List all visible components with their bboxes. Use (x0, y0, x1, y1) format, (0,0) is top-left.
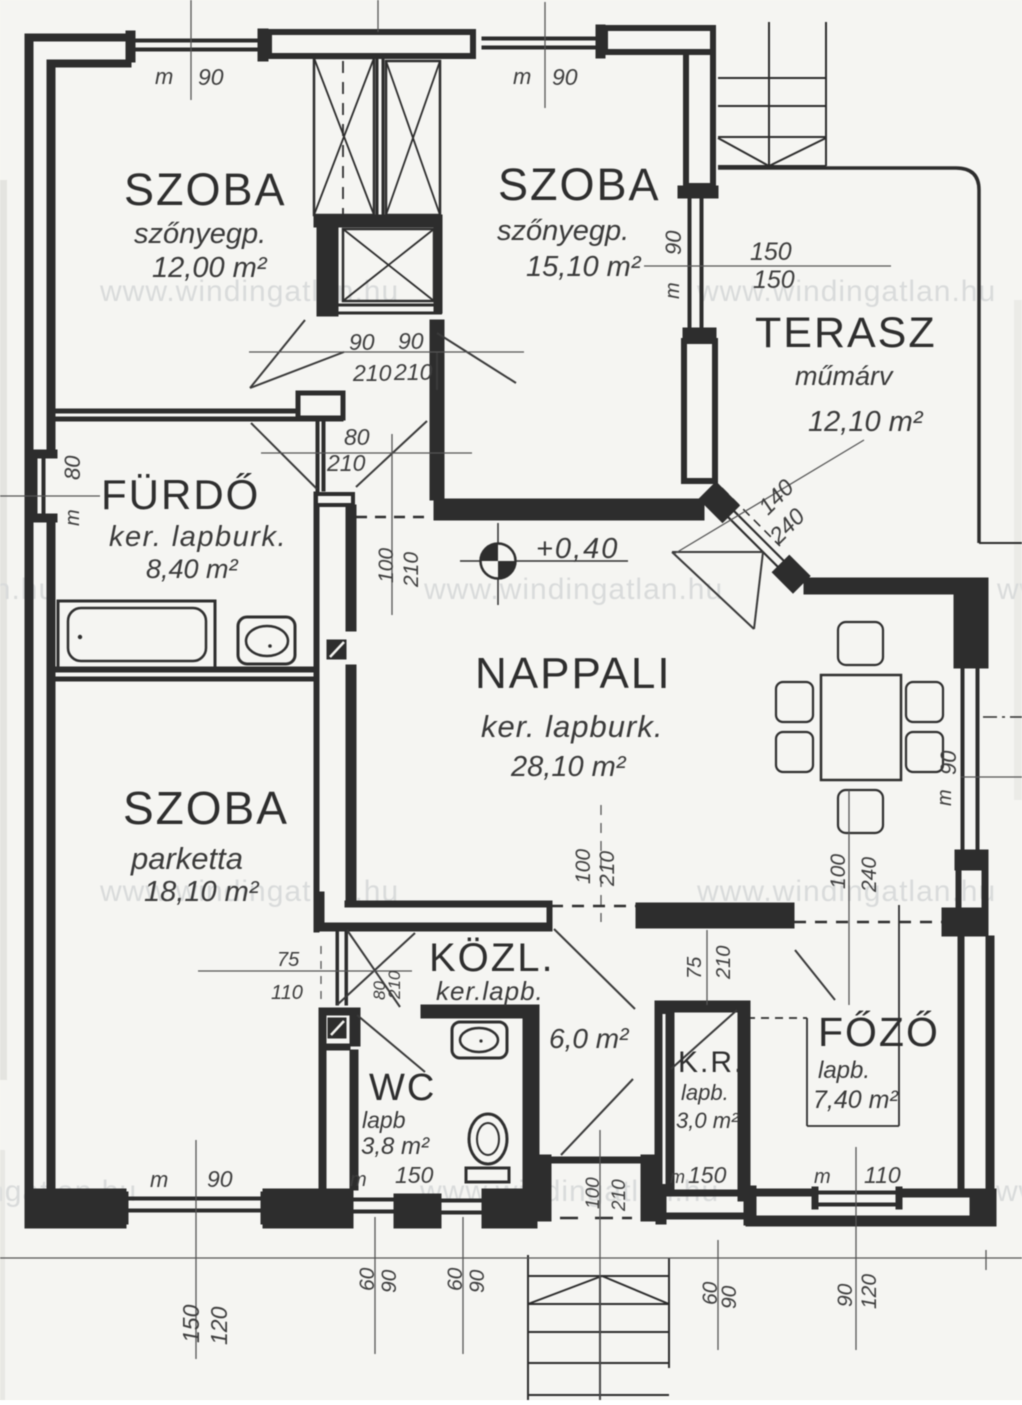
svg-text:90: 90 (349, 329, 375, 355)
svg-text:60: 60 (356, 1267, 379, 1291)
svg-text:120: 120 (206, 1306, 232, 1345)
svg-text:ker. lapburk.: ker. lapburk. (109, 521, 287, 553)
svg-text:lapb.: lapb. (681, 1080, 729, 1105)
svg-text:90: 90 (718, 1285, 741, 1309)
svg-text:75: 75 (684, 956, 706, 979)
svg-text:210: 210 (385, 970, 404, 1000)
svg-text:www.windingatlan.hu: www.windingatlan.hu (696, 275, 996, 308)
svg-text:28,10 m²: 28,10 m² (510, 751, 627, 783)
svg-text:210: 210 (352, 360, 392, 386)
svg-text:75: 75 (277, 949, 300, 971)
svg-text:www.windingatlan.hu: www.windingatlan.hu (996, 573, 1022, 606)
svg-text:SZOBA: SZOBA (123, 782, 289, 834)
svg-text:m: m (662, 282, 684, 299)
svg-text:110: 110 (271, 982, 303, 1004)
svg-text:ker.lapb.: ker.lapb. (436, 976, 544, 1006)
svg-text:100: 100 (583, 1177, 604, 1209)
svg-text:210: 210 (326, 450, 366, 476)
svg-text:100: 100 (375, 548, 398, 583)
svg-text:210: 210 (713, 946, 735, 980)
svg-text:SZOBA: SZOBA (124, 164, 287, 215)
svg-text:80: 80 (344, 424, 370, 450)
svg-text:6,0 m²: 6,0 m² (549, 1023, 630, 1054)
svg-text:90: 90 (198, 64, 224, 90)
svg-text:90: 90 (661, 230, 686, 255)
svg-text:NAPPALI: NAPPALI (475, 649, 672, 698)
svg-text:3,0 m²: 3,0 m² (676, 1108, 739, 1133)
svg-text:90: 90 (466, 1269, 489, 1293)
svg-text:90: 90 (398, 328, 424, 354)
svg-text:150: 150 (395, 1162, 434, 1188)
svg-text:90: 90 (936, 750, 961, 775)
svg-text:90: 90 (207, 1166, 233, 1192)
svg-text:szőnyegp.: szőnyegp. (134, 218, 266, 250)
svg-text:18,10 m²: 18,10 m² (144, 876, 260, 908)
svg-text:KÖZL.: KÖZL. (429, 936, 555, 980)
svg-text:K.R.: K.R. (678, 1046, 744, 1079)
svg-text:15,10 m²: 15,10 m² (526, 251, 642, 283)
svg-text:m: m (934, 789, 956, 806)
svg-text:150: 150 (688, 1162, 727, 1188)
svg-text:210: 210 (393, 359, 433, 385)
svg-text:7,40 m²: 7,40 m² (813, 1086, 899, 1114)
svg-text:12,00 m²: 12,00 m² (152, 252, 268, 284)
svg-text:szőnyegp.: szőnyegp. (497, 215, 629, 247)
svg-text:150: 150 (178, 1304, 204, 1343)
svg-text:12,10 m²: 12,10 m² (808, 406, 924, 438)
svg-text:műmárv: műmárv (795, 361, 894, 391)
svg-text:80: 80 (60, 455, 85, 480)
svg-text:www.windingatlan.hu: www.windingatlan.hu (995, 1175, 1022, 1208)
svg-text:m: m (150, 1167, 168, 1192)
svg-text:lapb: lapb (362, 1107, 406, 1133)
svg-text:FÜRDŐ: FÜRDŐ (101, 471, 260, 518)
svg-text:90: 90 (834, 1283, 857, 1307)
svg-text:100: 100 (827, 854, 850, 889)
svg-text:WC: WC (369, 1067, 436, 1109)
svg-text:110: 110 (864, 1162, 901, 1188)
svg-text:100: 100 (572, 849, 595, 884)
svg-text:parketta: parketta (130, 841, 243, 876)
svg-text:210: 210 (609, 1179, 630, 1212)
svg-text:150: 150 (750, 238, 792, 266)
svg-text:210: 210 (596, 851, 619, 887)
svg-text:3,8 m²: 3,8 m² (361, 1133, 430, 1160)
svg-text:m: m (62, 509, 84, 526)
svg-text:150: 150 (753, 266, 795, 294)
svg-text:+0,40: +0,40 (536, 533, 619, 565)
svg-text:120: 120 (858, 1274, 881, 1309)
svg-text:m: m (155, 64, 173, 89)
svg-text:SZOBA: SZOBA (498, 159, 661, 210)
svg-text:www.windingatlan.hu: www.windingatlan.hu (423, 573, 723, 606)
svg-text:90: 90 (552, 64, 578, 90)
svg-text:m: m (814, 1166, 831, 1188)
svg-text:m: m (350, 1169, 367, 1191)
svg-text:240: 240 (858, 857, 881, 893)
svg-text:ker. lapburk.: ker. lapburk. (481, 709, 663, 744)
svg-text:TERASZ: TERASZ (755, 309, 937, 357)
svg-text:m: m (670, 1167, 685, 1187)
svg-text:210: 210 (400, 552, 423, 588)
svg-text:8,40 m²: 8,40 m² (146, 554, 239, 584)
svg-text:lapb.: lapb. (818, 1057, 870, 1084)
svg-text:FŐZŐ: FŐZŐ (818, 1009, 940, 1055)
svg-text:m: m (513, 64, 531, 89)
svg-text:60: 60 (444, 1267, 467, 1291)
svg-text:90: 90 (378, 1269, 401, 1293)
